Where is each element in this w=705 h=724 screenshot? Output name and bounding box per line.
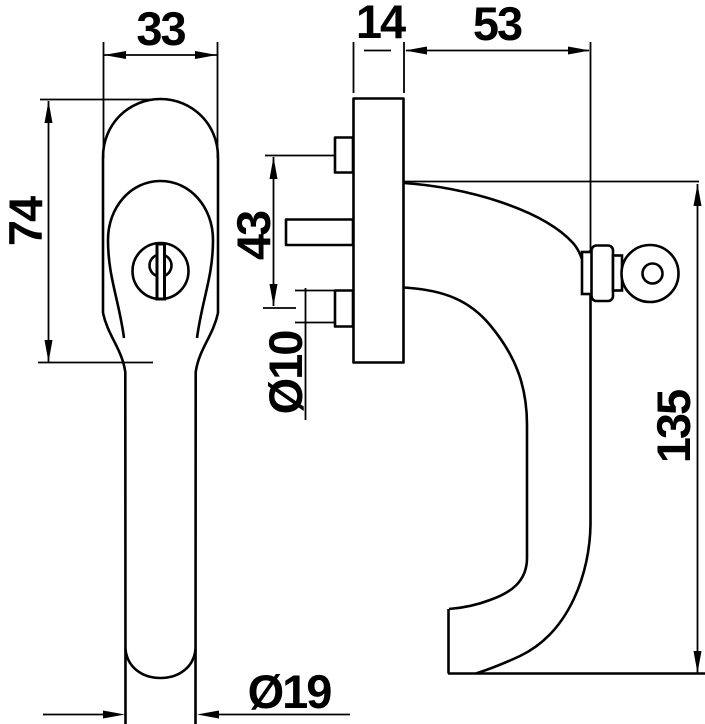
lock-rosette — [133, 243, 189, 299]
dimension-14: 14 — [354, 0, 406, 93]
arrowhead-left — [104, 51, 126, 59]
dimension-label-74: 74 — [0, 196, 52, 246]
dimension-43: 43 — [227, 156, 335, 309]
arrowhead-right — [568, 47, 590, 55]
cylinder-body — [592, 246, 614, 302]
drawing-canvas: 33 74 14 53 43 Ø10 135 — [0, 0, 705, 724]
side-handle-inner-curve — [404, 288, 527, 559]
front-grip-end-arc — [126, 649, 196, 678]
screw-boss-top — [335, 138, 353, 173]
side-view — [286, 42, 705, 674]
dimension-label-14: 14 — [356, 0, 406, 48]
front-grip-left-edge — [103, 313, 126, 724]
arrowhead-right — [197, 711, 219, 719]
dimension-label-135: 135 — [647, 390, 700, 463]
arrowhead-bottom — [694, 651, 702, 673]
arrowhead-top — [270, 157, 278, 179]
arrowhead-left — [103, 711, 125, 719]
dimension-label-53: 53 — [473, 0, 522, 50]
dimension-label-33: 33 — [136, 2, 185, 55]
front-view — [103, 99, 218, 724]
key-slot — [157, 244, 165, 299]
dimension-label-diameter-19: Ø19 — [248, 665, 332, 718]
technical-drawing-window-handle: 33 74 14 53 43 Ø10 135 — [0, 0, 705, 724]
side-grip-bottom-inner — [449, 558, 527, 609]
dimension-33: 33 — [104, 2, 218, 158]
extension-line — [295, 291, 335, 323]
dimension-label-43: 43 — [227, 211, 280, 260]
extension-line — [38, 100, 153, 363]
screw-boss-bottom — [335, 291, 353, 327]
dimension-74: 74 — [0, 100, 153, 363]
dimension-53: 53 — [405, 0, 590, 55]
key-bow-hole — [643, 264, 663, 284]
dimension-label-diameter-10: Ø10 — [259, 331, 312, 415]
front-grip-right-edge — [196, 313, 219, 724]
mounting-plate — [354, 99, 404, 363]
arrowhead-right — [195, 51, 217, 59]
spindle — [286, 220, 353, 246]
arrowhead-left — [405, 47, 427, 55]
arrowhead-top — [45, 101, 53, 123]
key-cylinder — [582, 245, 679, 302]
side-handle-top-curve — [404, 183, 588, 290]
arrowhead-top — [694, 184, 702, 206]
arrowhead-bottom — [270, 284, 278, 306]
arrowhead-bottom — [45, 340, 53, 362]
